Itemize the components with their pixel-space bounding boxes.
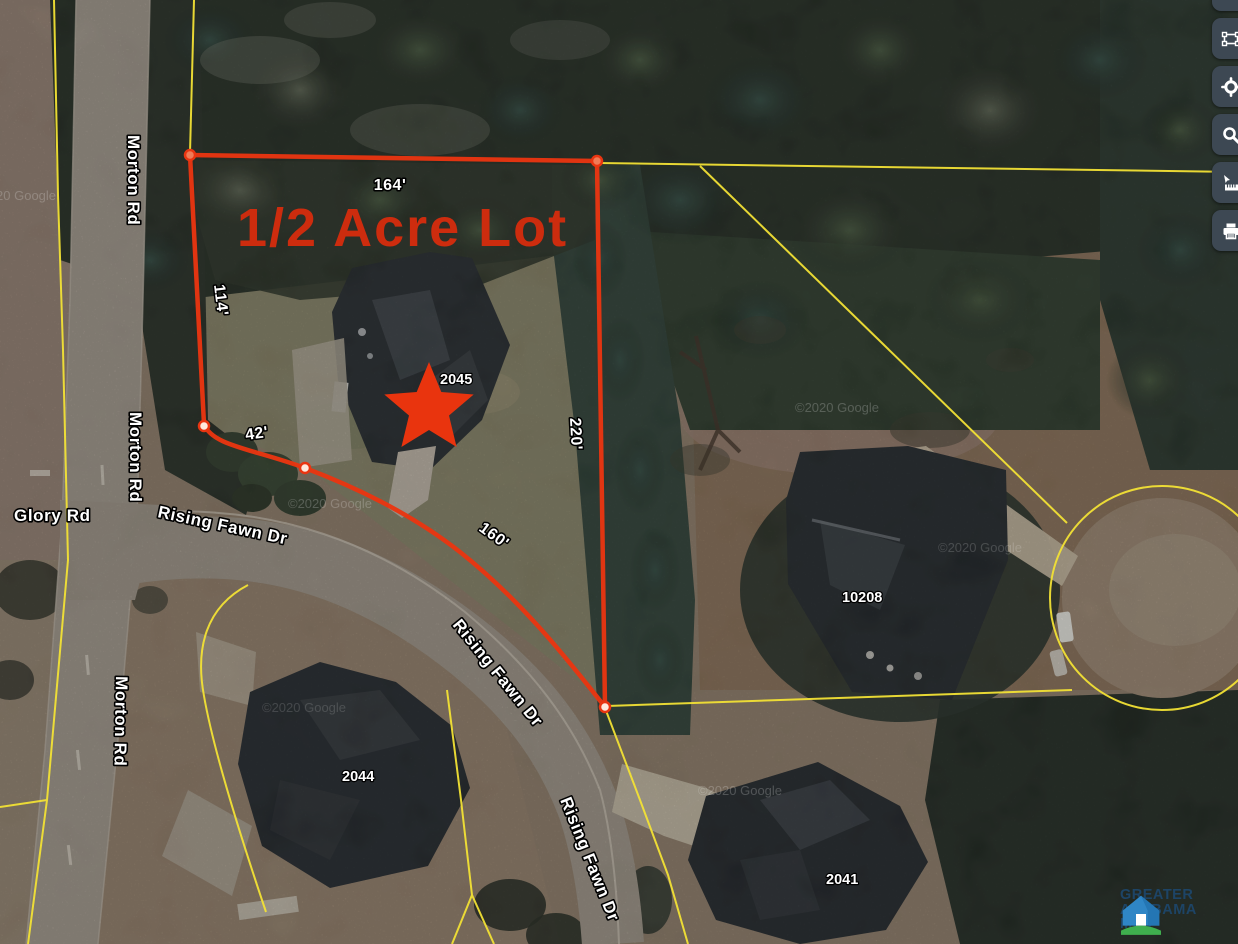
dimension-southwest: 42' bbox=[244, 424, 269, 444]
watermark: ©2020 Google bbox=[938, 540, 1022, 555]
search-button[interactable] bbox=[1212, 114, 1238, 155]
map-screenshot: ©2020 Google ©2020 Google ©2020 Google ©… bbox=[0, 0, 1238, 944]
house-number-2045: 2045 bbox=[440, 372, 472, 388]
collapsed-tool-button[interactable] bbox=[1212, 0, 1238, 11]
street-label-morton-3: Morton Rd bbox=[110, 676, 131, 767]
satellite-map[interactable]: ©2020 Google ©2020 Google ©2020 Google ©… bbox=[0, 0, 1238, 944]
measure-icon bbox=[1221, 173, 1238, 193]
house-number-2041: 2041 bbox=[826, 872, 858, 888]
watermark: ©2020 Google bbox=[262, 700, 346, 715]
select-extent-icon bbox=[1221, 29, 1238, 49]
lot-headline: 1/2 Acre Lot bbox=[237, 198, 568, 258]
vertex-marker bbox=[300, 463, 310, 473]
mls-house-icon bbox=[1116, 888, 1166, 940]
locate-icon bbox=[1221, 77, 1238, 97]
measure-button[interactable] bbox=[1212, 162, 1238, 203]
house-number-10208: 10208 bbox=[842, 590, 882, 606]
house-number-2044: 2044 bbox=[342, 769, 374, 785]
print-button[interactable] bbox=[1212, 210, 1238, 251]
vertex-marker bbox=[185, 150, 195, 160]
map-toolbar bbox=[1212, 0, 1238, 251]
watermark: ©2020 Google bbox=[795, 400, 879, 415]
select-extent-button[interactable] bbox=[1212, 18, 1238, 59]
vertex-marker bbox=[600, 702, 610, 712]
dimension-top: 164' bbox=[374, 177, 407, 194]
watermark: ©2020 Google bbox=[288, 496, 372, 511]
dimension-right: 220' bbox=[566, 417, 585, 450]
print-icon bbox=[1221, 221, 1238, 241]
watermark: ©2020 Google bbox=[0, 188, 56, 203]
vertex-marker bbox=[199, 421, 209, 431]
street-label-morton-2: Morton Rd bbox=[126, 412, 145, 502]
watermark: ©2020 Google bbox=[698, 783, 782, 798]
mls-logo: GREATER ALABAMA MLS bbox=[1116, 888, 1197, 932]
street-label-glory: Glory Rd bbox=[14, 506, 91, 525]
search-icon bbox=[1221, 125, 1238, 145]
locate-button[interactable] bbox=[1212, 66, 1238, 107]
vertex-marker bbox=[592, 156, 602, 166]
street-label-morton-1: Morton Rd bbox=[124, 135, 143, 225]
